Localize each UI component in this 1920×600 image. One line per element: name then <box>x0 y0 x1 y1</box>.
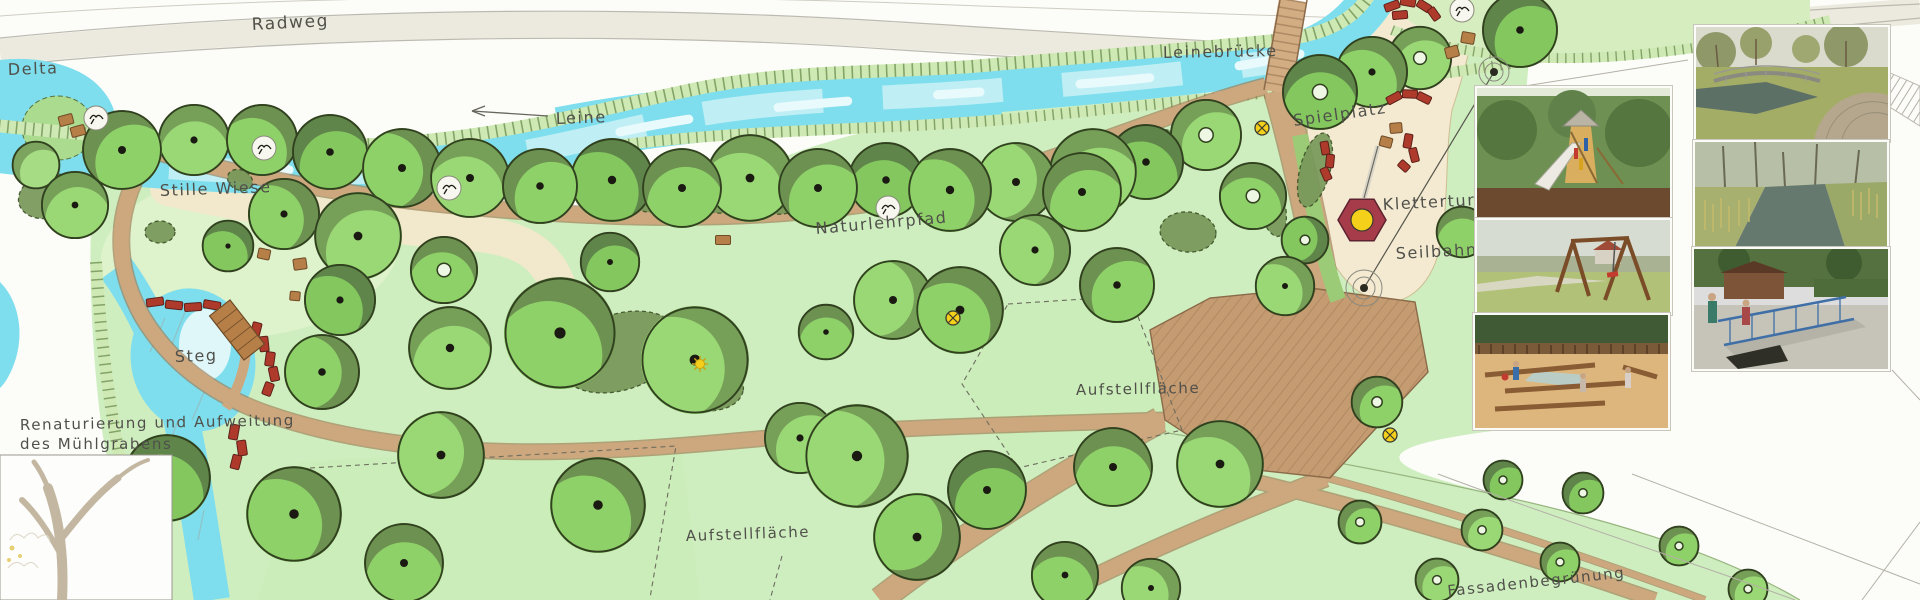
picnic-table-symbol <box>1390 122 1403 133</box>
bench-symbol <box>1325 154 1334 168</box>
bird-watching-icon <box>252 136 276 160</box>
photo-climbing-tower-image <box>1477 88 1670 218</box>
bench-symbol <box>265 351 276 366</box>
photo-tower-mulch <box>1477 188 1670 218</box>
lamp-marker-icon <box>1383 428 1397 442</box>
bird-watching-icon <box>1450 0 1474 22</box>
map-label-delta: Delta <box>7 58 58 79</box>
bench-symbol <box>184 302 202 311</box>
map-label-leine: Leine <box>555 107 607 128</box>
map-label-stille-wiese: Stille Wiese <box>159 177 271 200</box>
photo-bluebridge-image <box>1694 249 1888 369</box>
photo-climbing-tower <box>1477 88 1670 218</box>
photo-waterplay-image <box>1475 315 1668 428</box>
photo-bluebridge-bushes <box>1814 279 1888 297</box>
sketch-inset <box>0 455 172 600</box>
photo-water-play-area <box>1475 315 1668 428</box>
bench-symbol <box>1403 133 1413 148</box>
picnic-table-symbol <box>257 248 271 260</box>
photo-archbridge-image <box>1696 27 1888 140</box>
photo-stream <box>1695 142 1887 247</box>
bench-symbol <box>146 297 164 307</box>
picnic-table-symbol <box>716 236 731 245</box>
photo-swing-image <box>1477 220 1670 313</box>
map-label-steg: Steg <box>174 346 217 366</box>
lamp-marker-icon <box>946 311 960 325</box>
shrub-symbol <box>145 221 175 243</box>
bench-symbol <box>1320 141 1330 155</box>
map-label-leinebruecke: Leinebrücke <box>1163 41 1278 62</box>
flow-arrow-icon <box>472 106 548 116</box>
map-label-radweg: Radweg <box>251 11 329 35</box>
picnic-table-symbol <box>1461 31 1476 44</box>
bench-symbol <box>1402 90 1417 99</box>
flower-marker-icon <box>692 356 708 372</box>
bird-watching-icon <box>437 176 461 200</box>
picnic-table-symbol <box>293 258 307 271</box>
bird-watching-icon <box>84 106 108 130</box>
photo-blue-bridge <box>1694 249 1888 369</box>
photo-swing-treeline <box>1477 256 1670 274</box>
map-label-renaturierung-zeile-2: des Mühlgrabens <box>20 435 172 453</box>
picnic-table-symbol <box>290 291 301 301</box>
map-label-aufstellflaeche-ost: Aufstellfläche <box>1076 379 1201 399</box>
bench-symbol <box>237 440 248 456</box>
photo-arch-bridge <box>1696 27 1888 140</box>
park-master-plan: RadwegDeltaLeineLeinebrückeStille WieseN… <box>0 0 1920 600</box>
bench-symbol <box>1392 10 1408 19</box>
bench-symbol <box>165 300 183 310</box>
photo-swing-frame <box>1477 220 1670 313</box>
photo-stream-image <box>1695 142 1887 247</box>
lamp-marker-icon <box>1255 121 1269 135</box>
